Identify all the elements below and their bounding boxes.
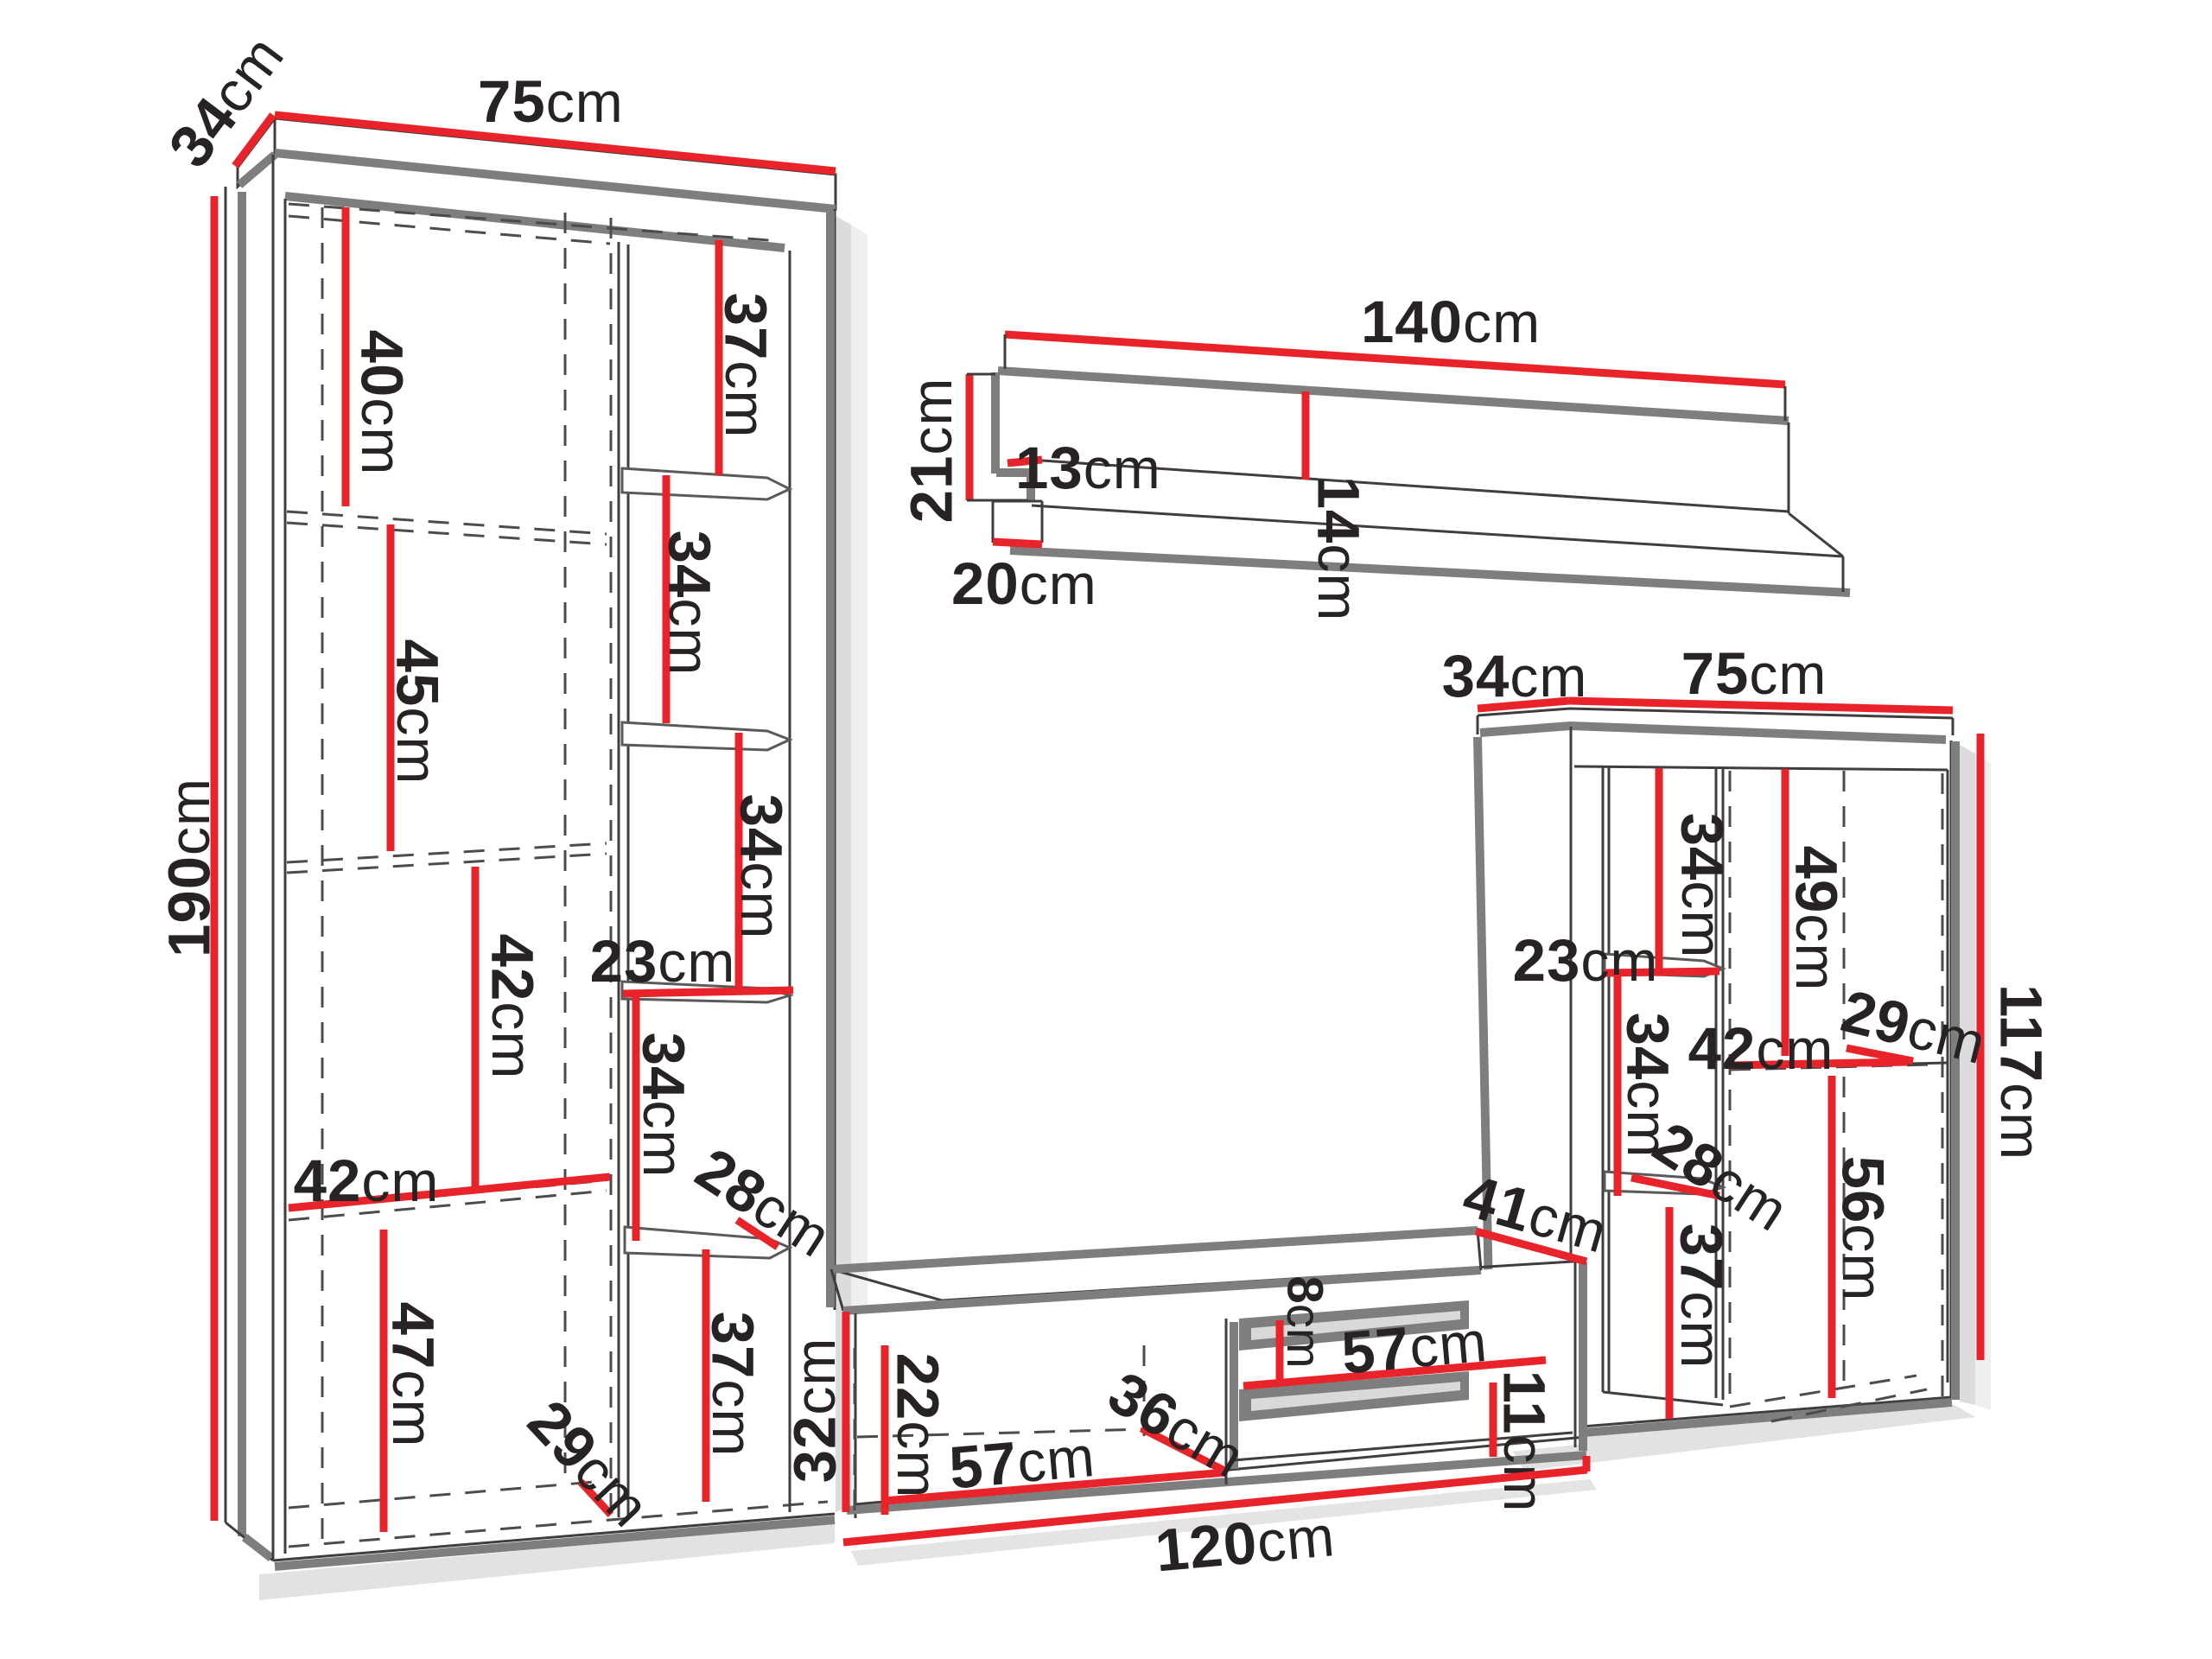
svg-text:34cm: 34cm <box>1442 643 1588 709</box>
svg-text:40cm: 40cm <box>349 330 416 476</box>
svg-text:22cm: 22cm <box>885 1353 951 1499</box>
svg-text:13cm: 13cm <box>1015 435 1161 501</box>
svg-text:23cm: 23cm <box>590 928 736 995</box>
svg-text:75cm: 75cm <box>478 68 624 135</box>
svg-text:34cm: 34cm <box>657 531 723 677</box>
svg-text:56cm: 56cm <box>1830 1156 1897 1302</box>
svg-text:42cm: 42cm <box>480 934 546 1080</box>
svg-text:120cm: 120cm <box>1153 1503 1338 1585</box>
svg-text:29cm: 29cm <box>515 1388 663 1540</box>
svg-text:42cm: 42cm <box>294 1147 440 1214</box>
svg-text:45cm: 45cm <box>385 639 451 785</box>
svg-text:32cm: 32cm <box>782 1338 849 1484</box>
svg-text:37cm: 37cm <box>1669 1224 1735 1370</box>
svg-text:11cm: 11cm <box>1491 1370 1558 1513</box>
svg-text:37cm: 37cm <box>713 293 779 439</box>
svg-text:140cm: 140cm <box>1361 289 1541 355</box>
svg-text:75cm: 75cm <box>1681 640 1827 707</box>
svg-text:34cm: 34cm <box>631 1033 697 1179</box>
svg-text:190cm: 190cm <box>156 778 223 957</box>
svg-text:117cm: 117cm <box>1988 984 2055 1160</box>
svg-text:14cm: 14cm <box>1306 476 1372 622</box>
svg-text:8cm: 8cm <box>1277 1276 1333 1369</box>
svg-text:34cm: 34cm <box>728 794 795 940</box>
svg-text:49cm: 49cm <box>1783 846 1850 992</box>
svg-text:34cm: 34cm <box>1669 813 1736 959</box>
svg-text:37cm: 37cm <box>700 1312 766 1458</box>
svg-text:42cm: 42cm <box>1688 1015 1834 1082</box>
svg-text:23cm: 23cm <box>1513 927 1659 994</box>
svg-text:47cm: 47cm <box>380 1302 447 1448</box>
svg-text:21cm: 21cm <box>899 378 965 524</box>
svg-text:20cm: 20cm <box>951 550 1097 617</box>
